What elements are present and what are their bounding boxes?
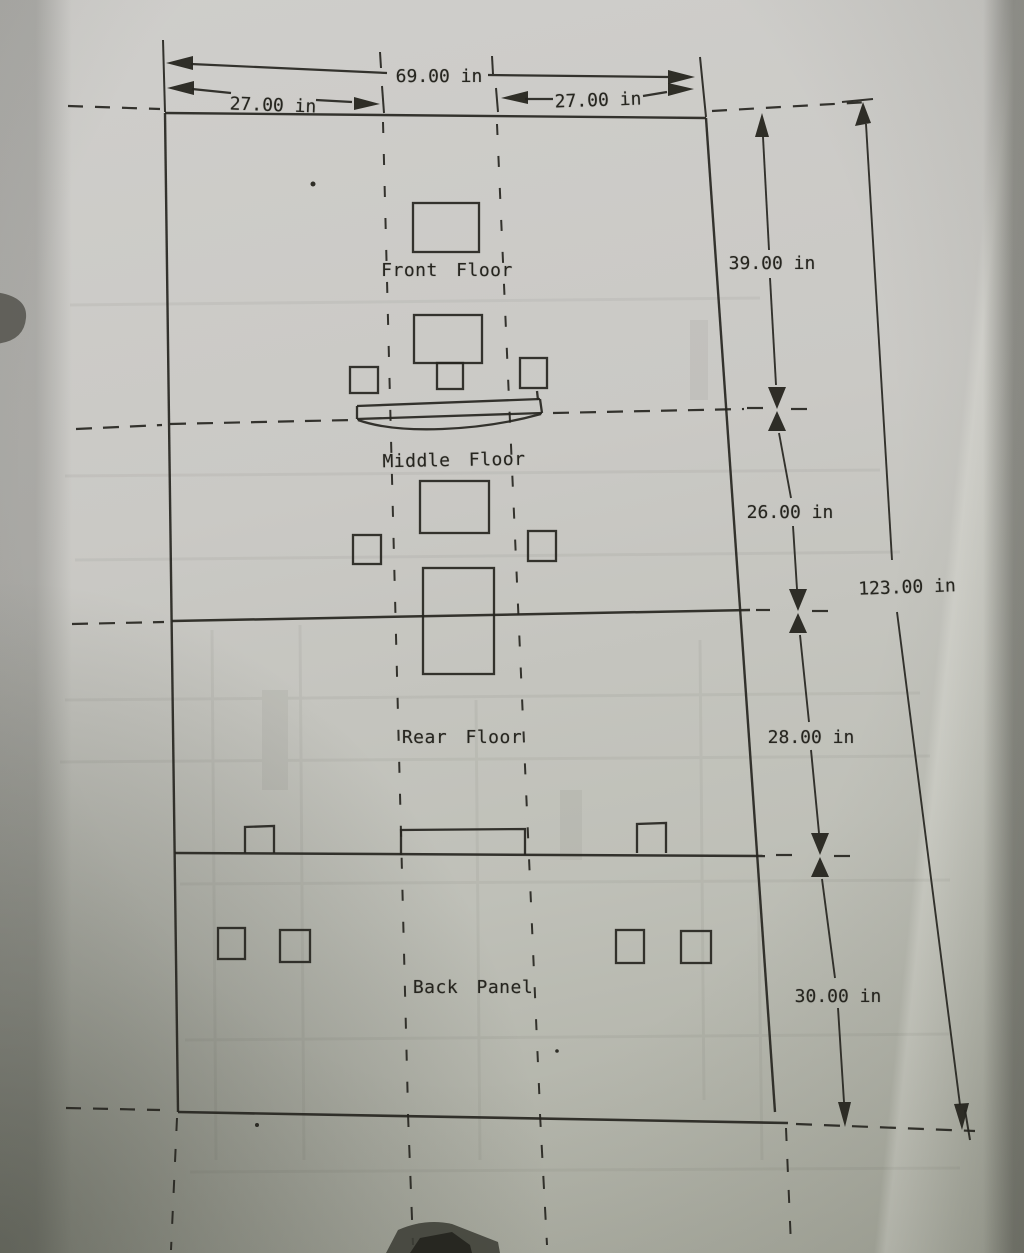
front-square-left (350, 367, 378, 393)
total-width-label: 69.00 in (396, 66, 483, 87)
rear-tab-middle (401, 829, 525, 855)
front-square-right (520, 358, 547, 388)
photographed-blueprint: 69.00 in 27.00 in 27.00 in (0, 0, 1024, 1253)
rear-back-boundary (175, 853, 765, 856)
total-height-label: 123.00 in (858, 575, 956, 599)
middle-floor-section: Middle Floor (353, 449, 556, 674)
front-floor-height-label: 39.00 in (729, 253, 816, 274)
section-height-dimension-line: 39.00 in 26.00 in 28.00 in 30.00 in (729, 113, 882, 1127)
front-cutout-1 (413, 203, 479, 252)
front-middle-boundary (76, 409, 744, 429)
back-square-4 (681, 931, 711, 963)
middle-floor-height-label: 26.00 in (747, 502, 834, 523)
rear-floor-section: Rear Floor (245, 727, 666, 855)
back-panel-height-label: 30.00 in (795, 986, 882, 1007)
rear-tab-right (637, 823, 666, 853)
front-floor-label: Front Floor (381, 260, 513, 281)
hourglass-terminator-middle-rear (756, 589, 828, 633)
middle-floor-label: Middle Floor (382, 449, 525, 472)
rear-floor-height-label: 28.00 in (768, 727, 855, 748)
middle-cutout-1 (420, 481, 489, 533)
rear-floor-label: Rear Floor (402, 727, 522, 748)
rear-tab-left (245, 826, 274, 853)
front-cutout-2 (414, 315, 482, 363)
lens-cutout (357, 391, 542, 429)
back-panel-label: Back Panel (413, 977, 533, 998)
front-cutout-stem (437, 363, 463, 389)
left-edge-object (0, 292, 26, 344)
dimension-left-offset: 27.00 in (167, 81, 384, 118)
right-offset-label: 27.00 in (554, 88, 641, 112)
front-floor-section: Front Floor (350, 203, 547, 393)
middle-square-left (353, 535, 381, 564)
hourglass-terminator-rear-back (776, 833, 850, 877)
middle-rear-cutout (423, 568, 494, 674)
middle-rear-boundary (72, 610, 750, 624)
dimension-right-offset: 27.00 in (496, 83, 694, 113)
back-square-2 (280, 930, 310, 962)
back-panel-section: Back Panel (218, 928, 711, 998)
fold-lines (383, 122, 547, 1245)
total-height-dimension-line: 123.00 in (842, 99, 970, 1140)
hourglass-terminator-front-middle (747, 387, 807, 431)
back-square-3 (616, 930, 644, 963)
back-square-1 (218, 928, 245, 959)
technical-drawing: 69.00 in 27.00 in 27.00 in (0, 0, 1024, 1253)
